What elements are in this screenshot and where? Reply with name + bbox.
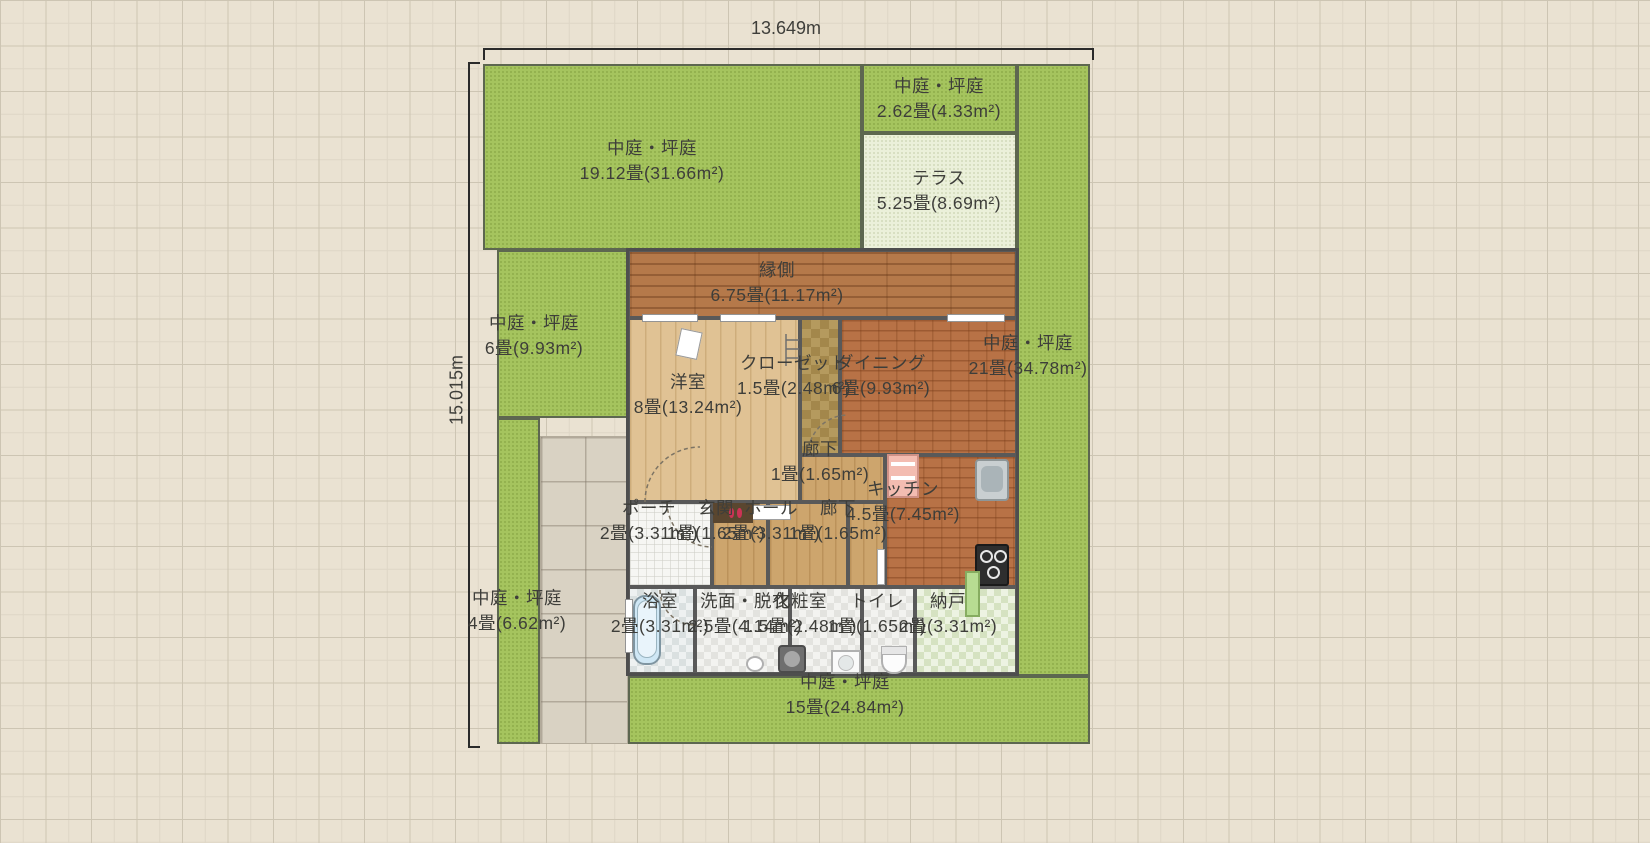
room-corridor2-label: 廊下 1畳(1.65m²) xyxy=(789,496,887,546)
toilet-tank xyxy=(881,646,907,655)
window-icon xyxy=(720,314,776,322)
garden-4-region[interactable] xyxy=(497,418,540,744)
garden-6-label: 中庭・坪庭 6畳(9.93m²) xyxy=(485,311,583,361)
room-area: 6.75畳(11.17m²) xyxy=(710,283,843,308)
garden-area: 2.62畳(4.33m²) xyxy=(877,99,1001,124)
room-name: ダイニング xyxy=(832,351,930,376)
garden-name: 中庭・坪庭 xyxy=(580,136,725,161)
window-icon xyxy=(947,314,1005,322)
room-name: 廊下 xyxy=(789,496,887,521)
terrace-label: テラス 5.25畳(8.69m²) xyxy=(877,166,1001,216)
garden-4-label: 中庭・坪庭 4畳(6.62m²) xyxy=(468,586,566,636)
room-nando-label: 納戸 2畳(3.31m²) xyxy=(899,589,997,639)
pedestal-sink-icon[interactable] xyxy=(746,656,764,672)
powder-sink-basin xyxy=(838,655,854,671)
garden-area: 15畳(24.84m²) xyxy=(786,695,905,720)
garden-19-label: 中庭・坪庭 19.12畳(31.66m²) xyxy=(580,136,725,186)
room-youshitsu-label: 洋室 8畳(13.24m²) xyxy=(634,370,743,420)
plan-canvas[interactable]: 13.649m 15.015m xyxy=(0,0,1650,843)
garden-name: 中庭・坪庭 xyxy=(786,670,905,695)
dimension-width-label: 13.649m xyxy=(751,18,821,39)
stove-burner xyxy=(980,550,993,563)
stove-burner xyxy=(994,550,1007,563)
garden-area: 21畳(34.78m²) xyxy=(969,356,1088,381)
kitchen-sink-basin xyxy=(981,466,1003,492)
kitchen-counter-shelf xyxy=(891,462,915,466)
dimension-line-left xyxy=(468,62,480,748)
stove-burner xyxy=(987,566,1000,579)
garden-21-label: 中庭・坪庭 21畳(34.78m²) xyxy=(969,331,1088,381)
room-area: 2畳(3.31m²) xyxy=(899,614,997,639)
room-name: 廊下 xyxy=(771,437,869,462)
garden-area: 4畳(6.62m²) xyxy=(468,611,566,636)
garden-name: 中庭・坪庭 xyxy=(485,311,583,336)
garden-area: 19.12畳(31.66m²) xyxy=(580,161,725,186)
garden-15-label: 中庭・坪庭 15畳(24.84m²) xyxy=(786,670,905,720)
room-engawa-label: 縁側 6.75畳(11.17m²) xyxy=(710,258,843,308)
dimension-height-label: 15.015m xyxy=(447,355,468,425)
room-dining-label: ダイニング 6畳(9.93m²) xyxy=(832,351,930,401)
room-name: テラス xyxy=(877,166,1001,191)
garden-area: 6畳(9.93m²) xyxy=(485,336,583,361)
garden-name: 中庭・坪庭 xyxy=(877,74,1001,99)
window-icon xyxy=(642,314,698,322)
room-area: 1畳(1.65m²) xyxy=(789,521,887,546)
room-area: 8畳(13.24m²) xyxy=(634,395,743,420)
room-area: 6畳(9.93m²) xyxy=(832,376,930,401)
garden-name: 中庭・坪庭 xyxy=(468,586,566,611)
washing-machine-drum xyxy=(784,651,800,667)
garden-name: 中庭・坪庭 xyxy=(969,331,1088,356)
dimension-line-top xyxy=(483,48,1094,60)
room-name: 洋室 xyxy=(634,370,743,395)
garden-2-62-label: 中庭・坪庭 2.62畳(4.33m²) xyxy=(877,74,1001,124)
corridor-cabinet-icon[interactable] xyxy=(877,549,885,585)
room-name: 納戸 xyxy=(899,589,997,614)
room-name: 縁側 xyxy=(710,258,843,283)
room-area: 5.25畳(8.69m²) xyxy=(877,191,1001,216)
